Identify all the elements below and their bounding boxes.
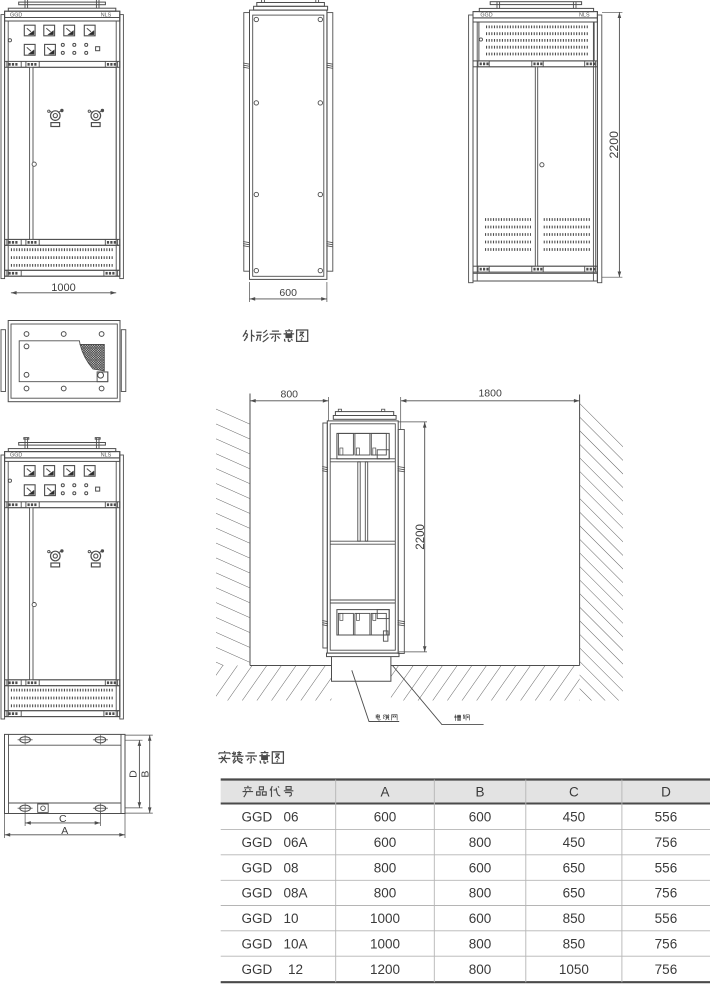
svg-text:A: A: [61, 825, 68, 837]
svg-text:GGD: GGD: [242, 835, 273, 850]
svg-text:800: 800: [469, 962, 492, 977]
svg-text:1000: 1000: [370, 911, 400, 926]
svg-text:D: D: [661, 784, 671, 799]
svg-text:1000: 1000: [51, 282, 75, 294]
svg-text:756: 756: [655, 835, 678, 850]
svg-text:800: 800: [374, 860, 397, 875]
svg-text:D: D: [127, 770, 139, 778]
svg-text:2200: 2200: [415, 524, 427, 550]
svg-text:08: 08: [284, 860, 299, 875]
svg-text:800: 800: [280, 388, 298, 400]
svg-text:756: 756: [655, 936, 678, 951]
svg-text:800: 800: [374, 886, 397, 901]
svg-text:08A: 08A: [284, 886, 308, 901]
svg-text:2200: 2200: [607, 131, 621, 159]
svg-text:GGD: GGD: [242, 886, 273, 901]
svg-text:650: 650: [563, 886, 586, 901]
svg-text:800: 800: [469, 936, 492, 951]
svg-text:850: 850: [563, 911, 586, 926]
svg-text:556: 556: [655, 860, 678, 875]
svg-text:600: 600: [279, 287, 297, 299]
svg-text:06: 06: [284, 809, 299, 824]
svg-text:1800: 1800: [478, 387, 502, 399]
svg-text:450: 450: [563, 809, 586, 824]
svg-text:600: 600: [374, 809, 397, 824]
svg-text:C: C: [59, 813, 67, 825]
svg-text:600: 600: [469, 911, 492, 926]
svg-text:556: 556: [655, 911, 678, 926]
svg-text:556: 556: [655, 809, 678, 824]
svg-text:B: B: [140, 771, 152, 778]
svg-text:GGD: GGD: [242, 911, 273, 926]
svg-text:800: 800: [469, 886, 492, 901]
svg-text:800: 800: [469, 835, 492, 850]
svg-text:GGD: GGD: [242, 936, 273, 951]
svg-text:756: 756: [655, 962, 678, 977]
svg-text:12: 12: [288, 962, 303, 977]
svg-text:10: 10: [284, 911, 299, 926]
svg-text:GGD: GGD: [242, 809, 273, 824]
svg-text:600: 600: [469, 809, 492, 824]
svg-text:600: 600: [469, 860, 492, 875]
svg-text:450: 450: [563, 835, 586, 850]
svg-text:06A: 06A: [284, 835, 308, 850]
svg-text:650: 650: [563, 860, 586, 875]
svg-text:GGD: GGD: [242, 962, 273, 977]
svg-text:1200: 1200: [370, 962, 400, 977]
svg-text:10A: 10A: [284, 936, 308, 951]
svg-text:756: 756: [655, 886, 678, 901]
svg-text:B: B: [476, 784, 485, 799]
svg-text:1000: 1000: [370, 936, 400, 951]
svg-text:600: 600: [374, 835, 397, 850]
svg-text:GGD: GGD: [242, 860, 273, 875]
svg-text:C: C: [569, 784, 579, 799]
svg-text:1050: 1050: [559, 962, 589, 977]
svg-text:850: 850: [563, 936, 586, 951]
svg-text:A: A: [380, 784, 389, 799]
